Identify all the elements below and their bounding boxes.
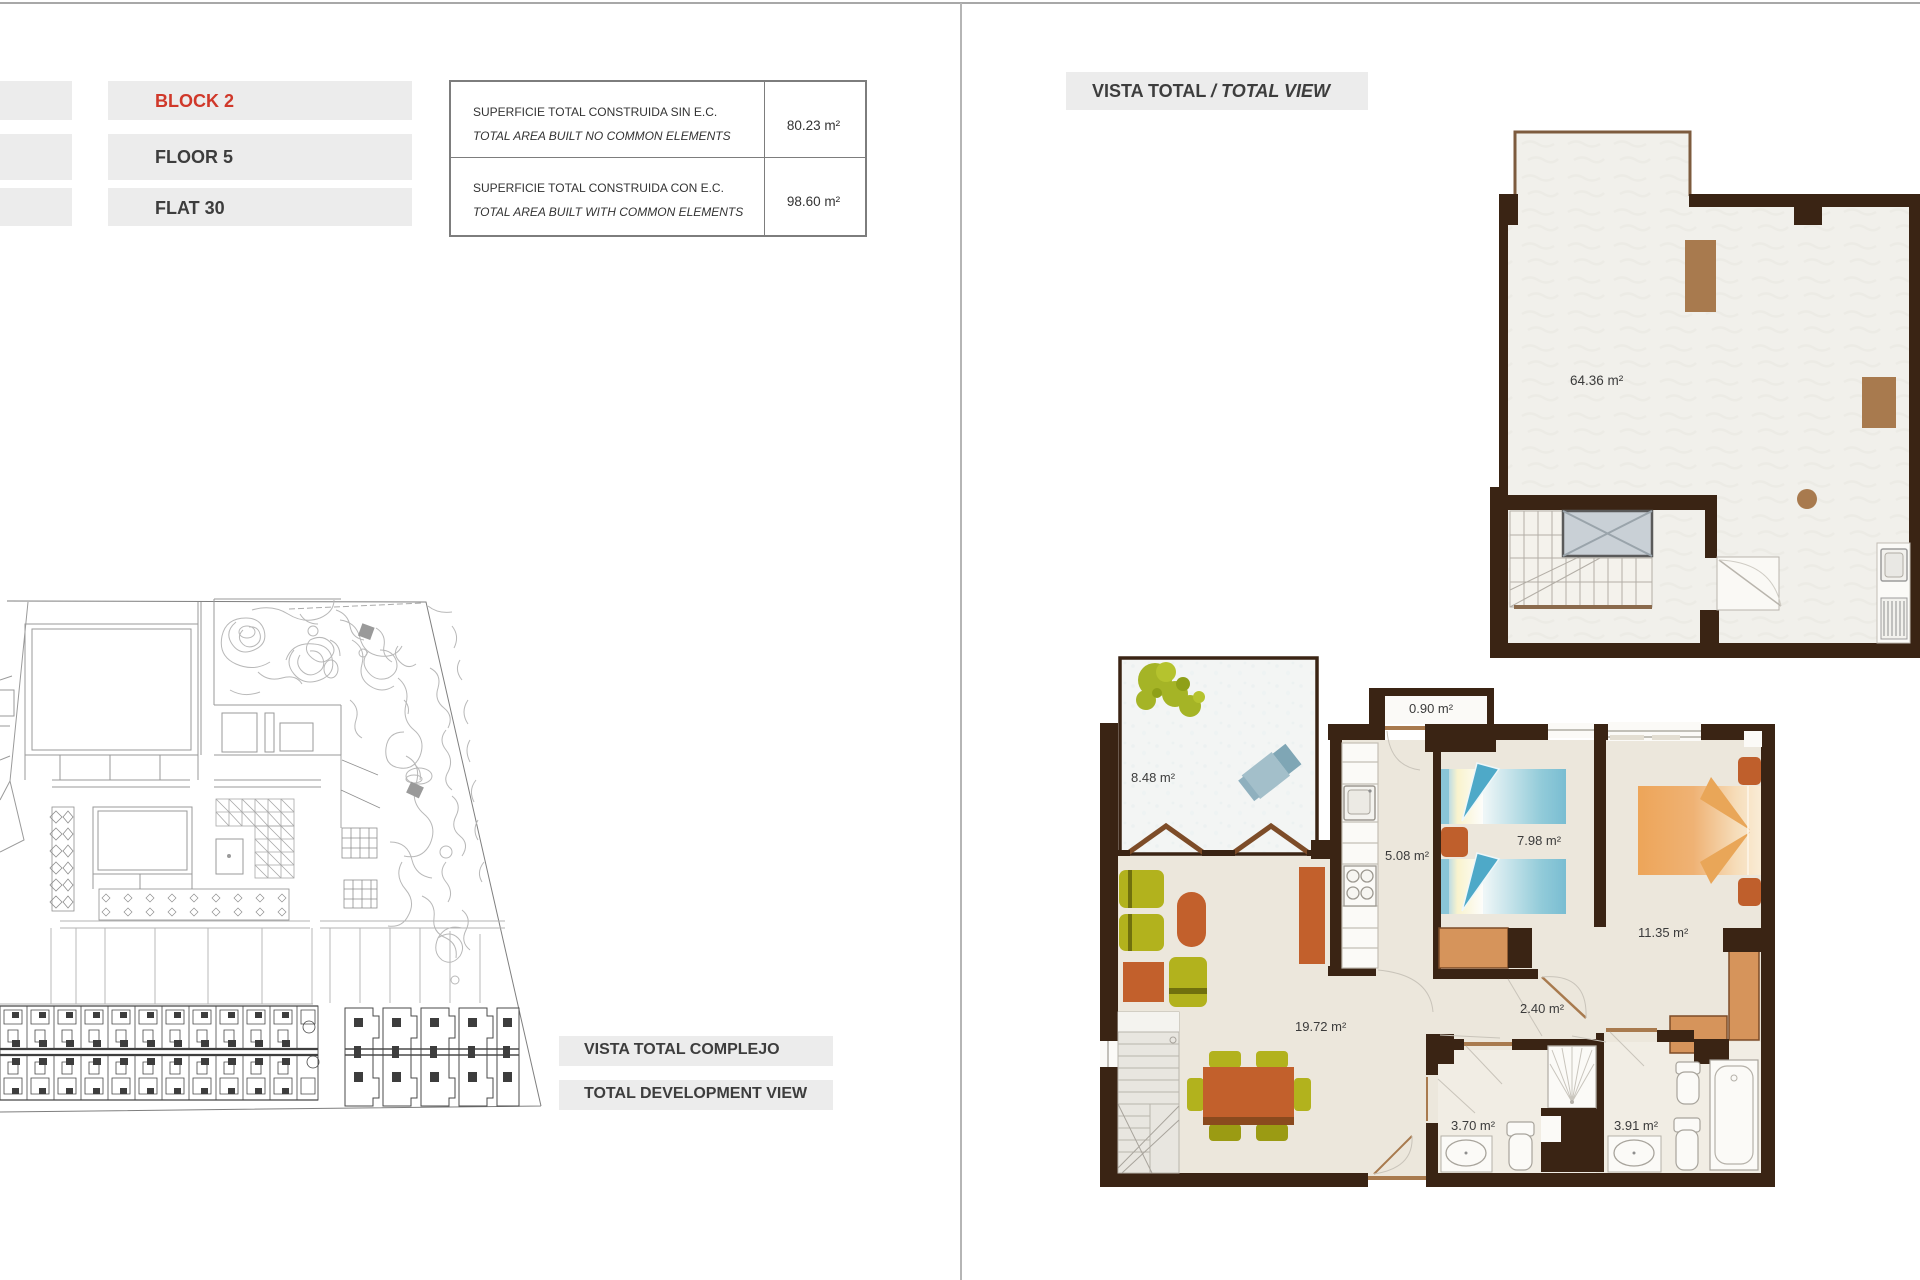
svg-text:64.36 m²: 64.36 m² (1570, 373, 1624, 388)
svg-text:5.08 m²: 5.08 m² (1385, 848, 1430, 863)
svg-text:19.72 m²: 19.72 m² (1295, 1019, 1347, 1034)
svg-text:2.40 m²: 2.40 m² (1520, 1001, 1565, 1016)
svg-text:0.90 m²: 0.90 m² (1409, 701, 1454, 716)
svg-text:11.35 m²: 11.35 m² (1638, 925, 1689, 940)
svg-text:7.98 m²: 7.98 m² (1517, 833, 1562, 848)
svg-text:3.70 m²: 3.70 m² (1451, 1118, 1496, 1133)
svg-text:3.91 m²: 3.91 m² (1614, 1118, 1659, 1133)
svg-text:8.48 m²: 8.48 m² (1131, 770, 1176, 785)
